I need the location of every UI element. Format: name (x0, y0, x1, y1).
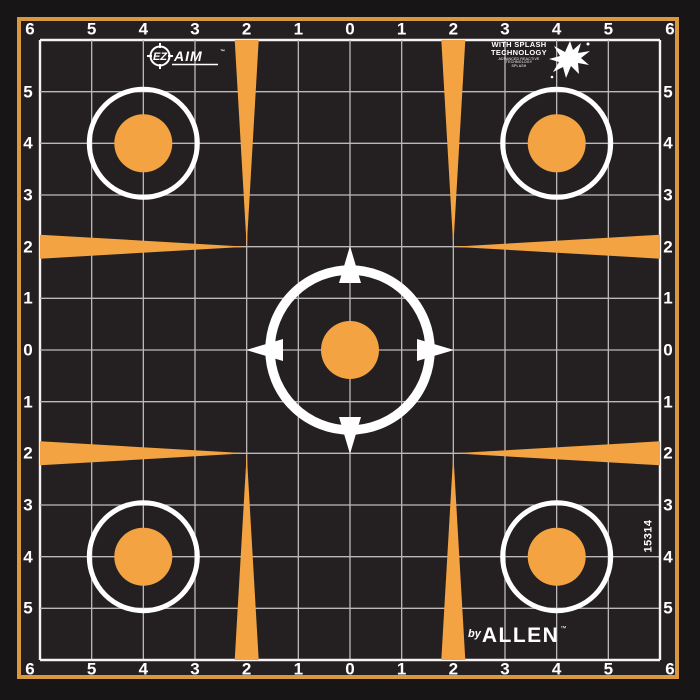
ez-wordmark: EZ (153, 51, 168, 63)
target-sheet: 6543210123456 6543210123456 54321012345 … (0, 0, 700, 700)
aim-wordmark: AIM (173, 48, 203, 64)
target-graphic (0, 0, 700, 700)
center-bullseye-dot (321, 321, 379, 379)
ezaim-trademark: ™ (220, 49, 225, 55)
allen-logo: by ALLEN ™ (468, 624, 566, 648)
allen-wordmark: ALLEN (482, 624, 560, 648)
splash-subline2: SPLASH (486, 65, 552, 69)
center-crosshair (246, 246, 454, 454)
crosshair-spike-right (417, 339, 454, 361)
ez-aim-logo: EZ AIM ™ (146, 42, 230, 70)
crosshair-spike-left (246, 339, 283, 361)
sku-number: 15314 (643, 519, 655, 552)
sku-label: 15314 (634, 514, 664, 558)
allen-by-mark: by (468, 628, 481, 640)
crosshair-spike-top (339, 246, 361, 283)
splash-technology-label: WITH SPLASH TECHNOLOGY ADVANCED REACTIVE… (486, 41, 552, 69)
crosshair-spike-bottom (339, 417, 361, 454)
allen-trademark: ™ (560, 626, 566, 632)
splash-icon (548, 40, 592, 82)
